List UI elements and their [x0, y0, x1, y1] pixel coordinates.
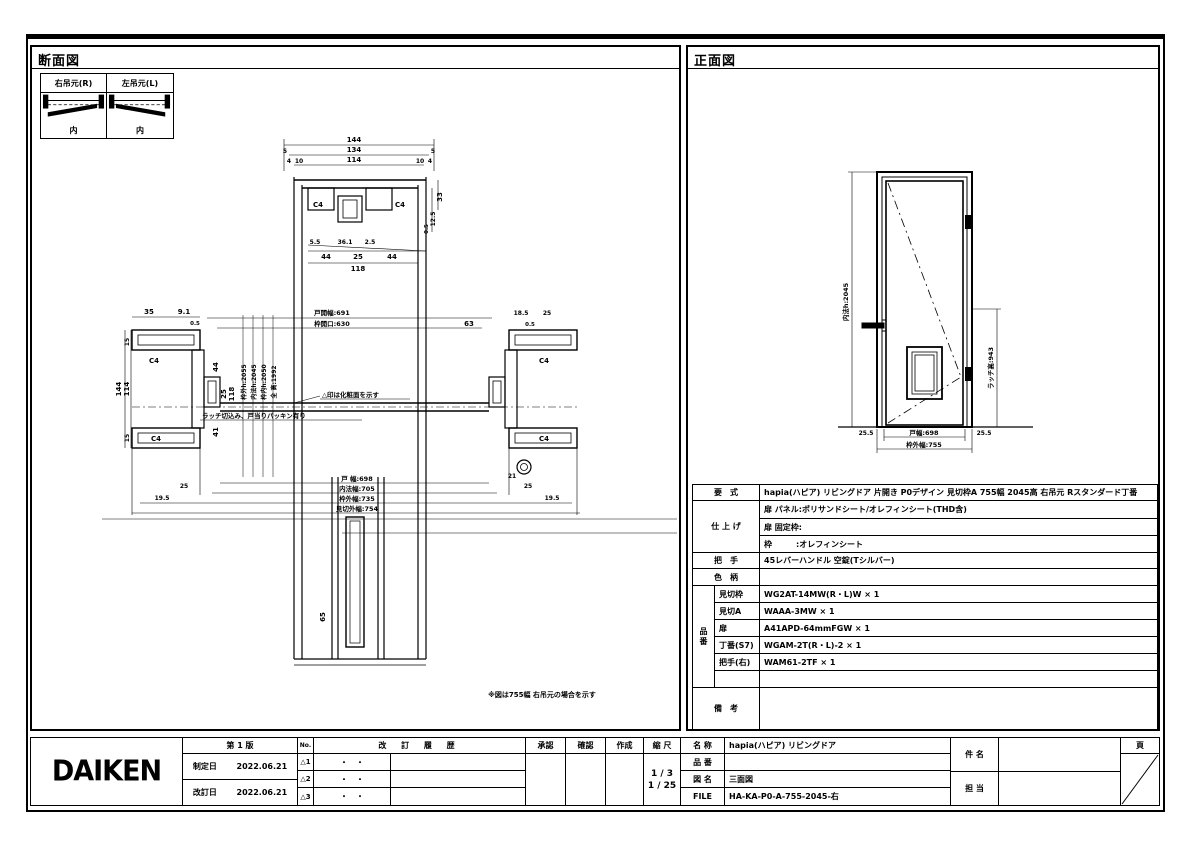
dim-plan-b25l: 25 — [180, 483, 188, 490]
rev-mark-2: △2 — [297, 770, 314, 788]
spec-part-name: 丁番(S7) — [714, 636, 760, 654]
established-label: 制定日 — [193, 761, 217, 772]
plan-left-jamb — [132, 330, 220, 448]
dim-sill-65: 65 — [319, 612, 327, 622]
revised-date: 2022.06.21 — [237, 788, 288, 797]
spec-youshiki-label: 要 式 — [692, 484, 760, 501]
dim-elev-height: 内法h:2045 — [841, 282, 850, 321]
spec-part-value: WAAA-3MW × 1 — [759, 602, 1158, 620]
tanto-label: 担 当 — [950, 771, 999, 806]
dim-plan-185: 18.5 — [514, 310, 529, 317]
tanto-value — [998, 771, 1121, 806]
spec-table: 要 式 hapia(ハピア) リビングドア 片開き P0デザイン 見切枠A 75… — [692, 484, 1158, 730]
spec-shiage-row3: 枠 :オレフィンシート — [759, 535, 1158, 553]
dim-elev-width: 戸幅:698 — [909, 428, 939, 437]
spec-iro-label: 色 柄 — [692, 568, 760, 586]
approve-body — [525, 753, 566, 806]
chamfer-head-left: C4 — [313, 201, 323, 209]
edition-label: 第 1 版 — [182, 737, 298, 754]
dim-plan-w2: 内法幅:705 — [339, 484, 375, 493]
hinge-marks — [965, 215, 971, 381]
dim-plan-25r: 25 — [543, 310, 551, 317]
dim-plan-91: 9.1 — [178, 308, 191, 316]
spec-biko-label: 備 考 — [692, 687, 760, 730]
drawing-sheet: 断面図 右吊元(R) 左吊元(L) 内 — [0, 0, 1191, 842]
hinban-label: 品 番 — [680, 753, 725, 771]
rev-date-3: ・ ・ — [313, 787, 391, 806]
dim-head-4b: 4 — [428, 158, 432, 165]
dim-head-134: 134 — [347, 146, 362, 154]
ref-height-4: 全 高:1992 — [270, 365, 278, 399]
file-value: HA-KA-P0-A-755-2045-右 — [724, 787, 951, 806]
dim-plan-top1: 戸開幅:691 — [314, 308, 350, 317]
daiken-logo: DAIKEN — [52, 755, 161, 788]
dim-plan-b25r: 25 — [524, 483, 532, 490]
spec-hand-value: 45レバーハンドル 空錠(Tシルバー) — [759, 552, 1158, 569]
dim-plan-b195l: 19.5 — [155, 495, 170, 502]
dim-elev-latch: ラッチ高:943 — [986, 347, 995, 389]
spec-hand-label: 把 手 — [692, 552, 760, 569]
note-face: △印は化粧面を示す — [322, 390, 379, 399]
dim-plan-144: 144 — [115, 382, 123, 397]
name-value: hapia(ハピア) リビングドア — [724, 737, 951, 754]
dim-head-25: 2.5 — [365, 239, 376, 246]
spec-shiage-row1: 扉 パネル:ポリサンドシート/オレフィンシート(THD含) — [759, 500, 1158, 519]
spec-part-name: 見切枠 — [714, 585, 760, 603]
rev-date-2: ・ ・ — [313, 770, 391, 788]
create-body — [605, 753, 644, 806]
ref-height-2: 内法h:2045 — [250, 364, 258, 399]
spec-shiage-label: 仕 上 げ — [692, 500, 760, 553]
spec-part-value — [759, 670, 1158, 688]
dim-head-10a: 10 — [295, 158, 303, 165]
dim-head-125: 12.5 — [430, 212, 437, 227]
dim-head-144: 144 — [347, 136, 362, 144]
spec-part-name: 見切A — [714, 602, 760, 620]
hinban-value — [724, 753, 951, 771]
daiken-logo-cell: DAIKEN — [30, 737, 183, 806]
plan-right-jamb — [489, 330, 577, 474]
title-block: DAIKEN 第 1 版 制定日 2022.06.21 改訂日 2022.06.… — [30, 737, 1160, 806]
spec-shiage-row2: 扉 固定枠: — [759, 518, 1158, 536]
chamfer-plan-c: C4 — [539, 357, 549, 365]
name-label: 名 称 — [680, 737, 725, 754]
create-header: 作成 — [605, 737, 644, 754]
ref-height-1: 枠外h:2055 — [240, 364, 248, 399]
spec-iro-value — [759, 568, 1158, 586]
scale-value-2: 1 / 25 — [648, 780, 676, 792]
kenmei-label: 件 名 — [950, 737, 999, 772]
chamfer-plan-d: C4 — [539, 435, 549, 443]
elevation-dim-lines — [848, 172, 1001, 453]
dim-head-44b: 44 — [387, 253, 397, 261]
dim-plan-05a: 0.5 — [190, 321, 200, 327]
dim-plan-w3: 枠外幅:735 — [339, 494, 375, 503]
file-label: FILE — [680, 787, 725, 806]
spec-part-name: 扉 — [714, 619, 760, 637]
dim-plan-b195r: 19.5 — [545, 495, 560, 502]
door-elevation — [838, 172, 1033, 427]
plan-reference-lines — [102, 315, 677, 533]
scale-header: 縮 尺 — [643, 737, 681, 754]
page-body — [1120, 753, 1160, 806]
dim-plan-top2: 枠開口:630 — [314, 319, 350, 328]
dim-plan-b21: 21 — [508, 473, 516, 480]
check-header: 確認 — [565, 737, 606, 754]
dim-head-5a: 5 — [283, 148, 287, 155]
dim-plan-35: 35 — [144, 308, 154, 316]
established-date-row: 制定日 2022.06.21 — [182, 753, 298, 780]
dim-head-5b: 5 — [431, 148, 435, 155]
dim-elev-right: 25.5 — [977, 430, 992, 437]
chamfer-plan-a: C4 — [149, 357, 159, 365]
dim-head-55: 5.5 — [310, 239, 321, 246]
dim-head-114: 114 — [347, 156, 362, 164]
revised-label: 改訂日 — [193, 787, 217, 798]
dim-elev-total: 枠外幅:755 — [906, 440, 942, 449]
section-drawing: 144 134 114 5 5 4 10 10 4 C4 C4 33 12.5 … — [32, 47, 679, 729]
zumei-value: 三面図 — [724, 770, 951, 788]
dim-head-361: 36.1 — [338, 239, 353, 246]
dim-head-118: 118 — [351, 265, 366, 273]
spec-part-value: WG2AT-14MW(R・L)W × 1 — [759, 585, 1158, 603]
spec-hinban-label: 品番 — [692, 585, 715, 688]
check-body — [565, 753, 606, 806]
no-header: No. — [297, 737, 314, 754]
spec-part-name — [714, 670, 760, 688]
rev-desc-1 — [390, 753, 526, 771]
dim-plan-w4: 見切外幅:754 — [335, 504, 379, 513]
dim-plan-15a: 15 — [124, 338, 131, 346]
rev-mark-1: △1 — [297, 753, 314, 771]
dim-elev-left: 25.5 — [859, 430, 874, 437]
dim-plan-25: 25 — [220, 389, 228, 399]
plan-door-panel — [132, 403, 577, 411]
elevation-drawing: 内法h:2045 ラッチ高:943 25.5 戸幅:698 25.5 枠外幅:7… — [688, 47, 1158, 477]
spec-part-value: A41APD-64mmFGW × 1 — [759, 619, 1158, 637]
dim-plan-63: 63 — [464, 320, 474, 328]
section-view-frame: 断面図 右吊元(R) 左吊元(L) 内 — [30, 45, 681, 731]
scale-value-1: 1 / 3 — [651, 768, 673, 780]
spec-part-value: WAM61-2TF × 1 — [759, 653, 1158, 671]
dim-head-33: 33 — [436, 192, 444, 202]
note-latch: ラッチ切込み、戸当りパッキン有り — [202, 411, 306, 420]
spec-part-name: 把手(右) — [714, 653, 760, 671]
dim-plan-41: 41 — [212, 427, 220, 437]
dim-head-4a: 4 — [287, 158, 291, 165]
scale-values: 1 / 3 1 / 25 — [643, 753, 681, 806]
zumei-label: 図 名 — [680, 770, 725, 788]
rev-date-1: ・ ・ — [313, 753, 391, 771]
rev-desc-3 — [390, 787, 526, 806]
elevation-view-frame: 正面図 — [686, 45, 1160, 731]
kenmei-value — [998, 737, 1121, 772]
dim-head-10b: 10 — [416, 158, 424, 165]
note-bottom: ※図は755幅 右吊元の場合を示す — [488, 690, 596, 699]
approve-header: 承認 — [525, 737, 566, 754]
rev-mark-3: △3 — [297, 787, 314, 806]
dim-head-25c: 25 — [353, 253, 363, 261]
revision-history-header: 改 訂 履 歴 — [313, 737, 526, 754]
chamfer-head-right: C4 — [395, 201, 405, 209]
dim-plan-w1: 戸 幅:698 — [341, 474, 373, 483]
dim-plan-114: 114 — [123, 382, 131, 397]
spec-biko-value — [759, 687, 1158, 730]
page-header: 頁 — [1120, 737, 1160, 754]
dim-head-44a: 44 — [321, 253, 331, 261]
page-diagonal — [1121, 754, 1159, 805]
ref-height-3: 枠内h:2050 — [260, 364, 268, 399]
door-handle — [862, 320, 886, 331]
spec-youshiki-value: hapia(ハピア) リビングドア 片開き P0デザイン 見切枠A 755幅 2… — [759, 484, 1158, 501]
established-date: 2022.06.21 — [237, 762, 288, 771]
dim-plan-118: 118 — [228, 387, 236, 402]
dim-plan-15b: 15 — [124, 434, 131, 442]
revised-date-row: 改訂日 2022.06.21 — [182, 779, 298, 806]
rev-desc-2 — [390, 770, 526, 788]
dim-plan-05b: 0.5 — [525, 322, 535, 328]
chamfer-plan-b: C4 — [151, 435, 161, 443]
dim-plan-44: 44 — [212, 362, 220, 372]
spec-part-value: WGAM-2T(R・L)-2 × 1 — [759, 636, 1158, 654]
dim-head-05: 0.5 — [424, 224, 430, 234]
